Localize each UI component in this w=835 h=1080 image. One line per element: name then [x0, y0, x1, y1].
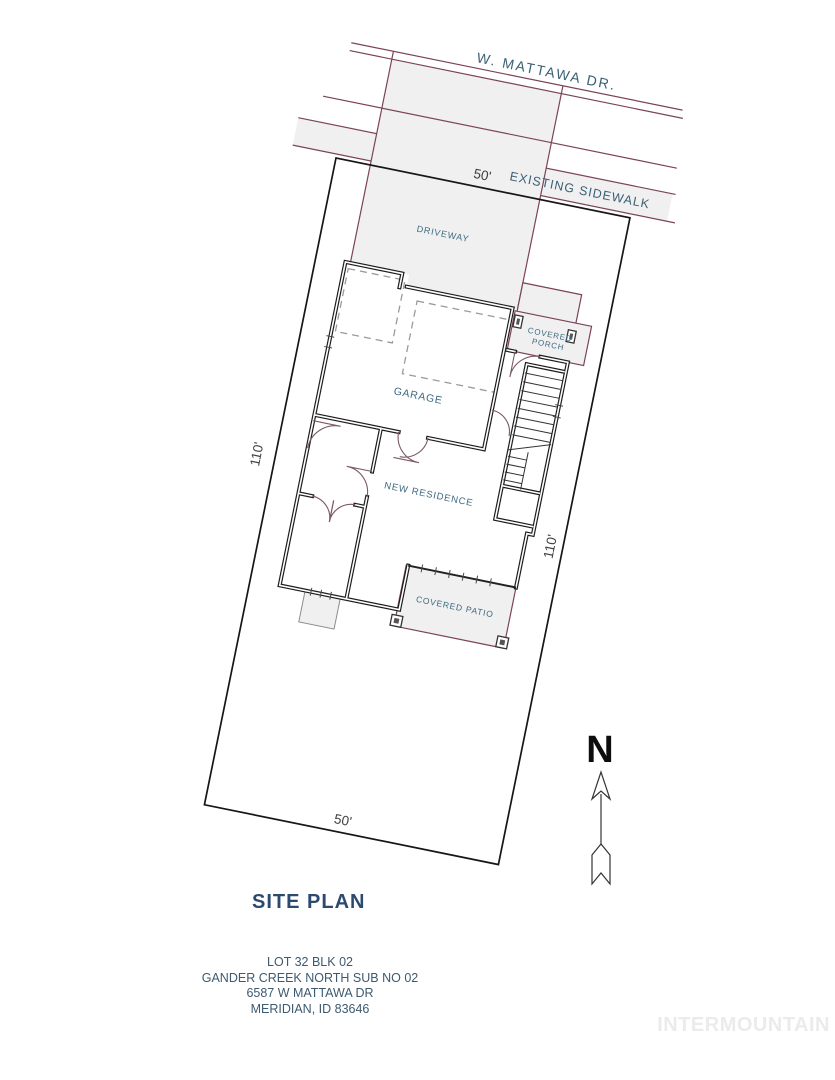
garage-label: GARAGE — [393, 385, 444, 407]
address-line-street: 6587 W MATTAWA DR — [135, 986, 485, 1002]
north-arrow-fletching — [592, 844, 610, 884]
address-line-lot: LOT 32 BLK 02 — [135, 955, 485, 971]
page-title: SITE PLAN — [252, 891, 365, 914]
address-block: LOT 32 BLK 02 GANDER CREEK NORTH SUB NO … — [135, 955, 485, 1017]
patio-post-right-core — [499, 639, 505, 645]
north-label: N — [586, 729, 613, 771]
dimension-left: 110' — [247, 441, 267, 468]
rotated-plan-group: W. MATTAWA DR. EXISTING SIDEWALK 50' DRI… — [160, 17, 701, 874]
residence-label: NEW RESIDENCE — [383, 480, 474, 509]
north-arrow-icon: N — [586, 729, 613, 884]
patio-post-left-core — [393, 618, 399, 624]
dimension-right: 110' — [541, 533, 561, 560]
address-line-subdivision: GANDER CREEK NORTH SUB NO 02 — [135, 971, 485, 987]
address-line-city: MERIDIAN, ID 83646 — [135, 1002, 485, 1018]
site-plan-page: W. MATTAWA DR. EXISTING SIDEWALK 50' DRI… — [0, 0, 835, 1080]
garage-bay-dashed-right — [402, 301, 511, 393]
dimension-rear: 50' — [333, 811, 353, 829]
watermark: INTERMOUNTAIN — [657, 1014, 830, 1037]
garage-bay-dashed-left — [335, 269, 405, 343]
site-plan-drawing: W. MATTAWA DR. EXISTING SIDEWALK 50' DRI… — [0, 0, 835, 1080]
